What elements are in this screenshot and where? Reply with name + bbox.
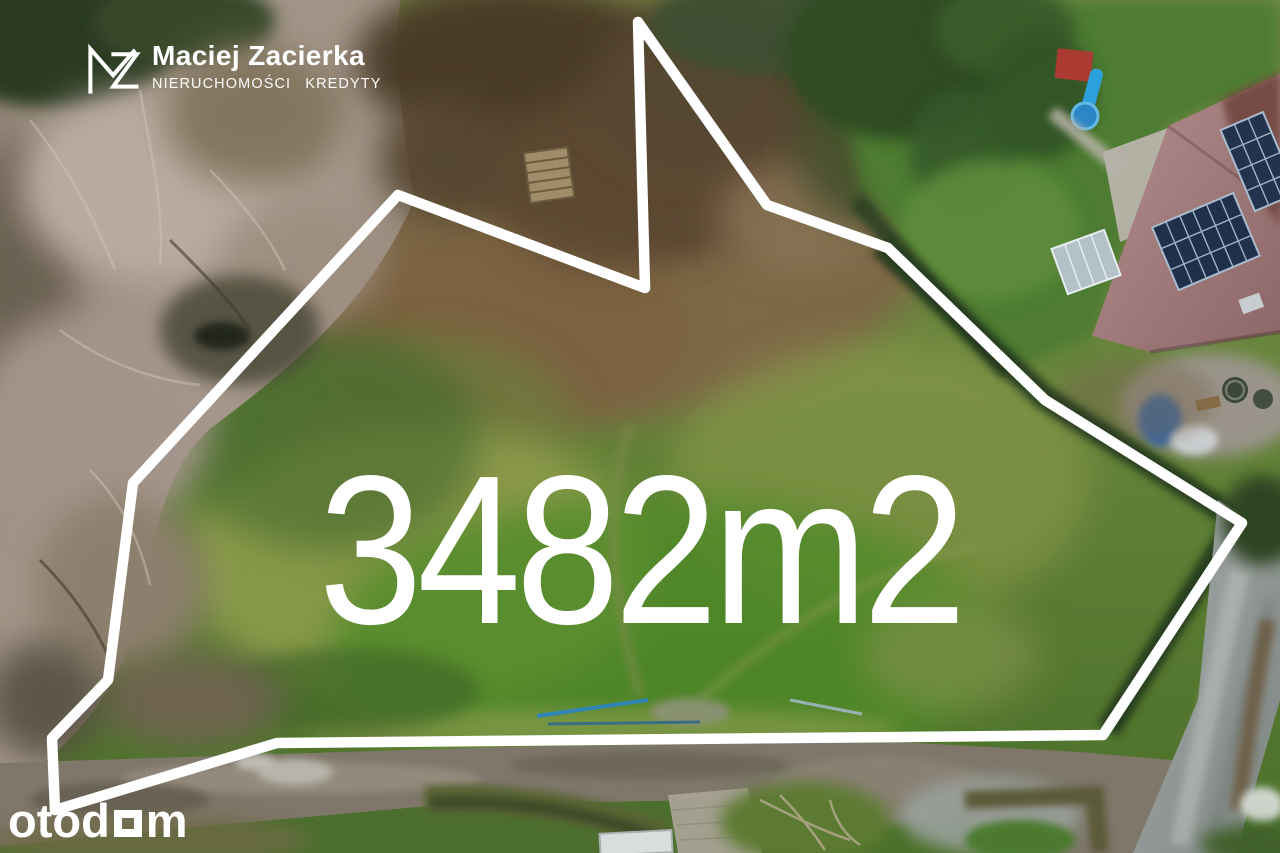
red-shed-roof [1055, 48, 1094, 82]
mz-monogram-icon [86, 40, 142, 100]
agent-name: Maciej Zacierka [152, 40, 381, 72]
otodom-watermark-suffix: m [146, 794, 188, 847]
pond [194, 322, 250, 350]
agent-tagline: NIERUCHOMOŚCI KREDYTY [152, 76, 381, 92]
otodom-square-o-icon [114, 810, 142, 837]
plot-area-label: 3482m2 [77, 444, 1203, 656]
agency-logo: Maciej Zacierka NIERUCHOMOŚCI KREDYTY [86, 40, 381, 100]
agency-logo-text: Maciej Zacierka NIERUCHOMOŚCI KREDYTY [152, 40, 381, 92]
listing-photo: Maciej Zacierka NIERUCHOMOŚCI KREDYTY 34… [0, 0, 1280, 853]
wooden-steps [524, 147, 575, 203]
aerial-photo-background [0, 0, 1280, 853]
white-shed-roof [600, 830, 673, 853]
otodom-watermark: otodm [8, 793, 188, 848]
otodom-watermark-prefix: otod [8, 794, 110, 847]
